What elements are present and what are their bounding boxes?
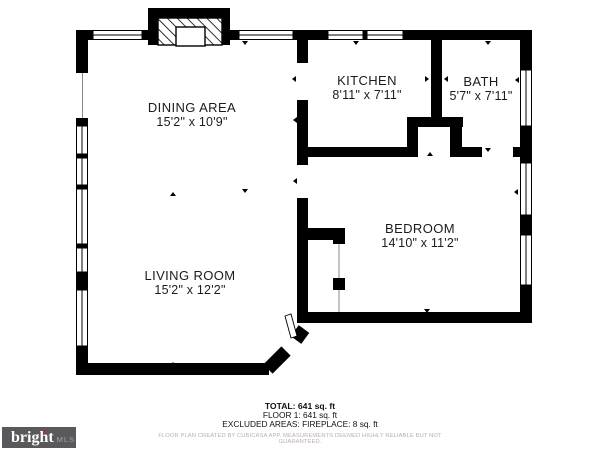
summary-disclaimer: FLOOR PLAN CREATED BY CUBICASA APP. MEAS… — [150, 433, 450, 445]
wall-right-1 — [520, 40, 532, 70]
marker-icon — [444, 76, 448, 82]
room-dims-kitchen: 8'11" x 7'11" — [332, 88, 401, 102]
wall-bottom-bedroom — [297, 312, 532, 323]
window-top-left — [93, 31, 142, 40]
wall-left-block2 — [76, 272, 88, 290]
wall-right-3 — [520, 215, 532, 235]
wall-diagonal-upper — [296, 329, 304, 340]
wall-left-top — [76, 30, 88, 73]
entry-door-leaf — [285, 314, 297, 338]
marker-icon — [425, 76, 429, 82]
floor-plan-drawing: DINING AREA 15'2" x 10'9" KITCHEN 8'11" … — [0, 0, 600, 450]
floor-plan-page: DINING AREA 15'2" x 10'9" KITCHEN 8'11" … — [0, 0, 600, 450]
marker-icon — [293, 178, 297, 184]
room-dims-dining: 15'2" x 10'9" — [156, 115, 227, 129]
fireplace-firebox — [176, 27, 205, 46]
logo-accent-dot-icon — [43, 430, 46, 433]
marker-icon — [292, 76, 296, 82]
marker-icon — [242, 189, 248, 193]
area-summary: TOTAL: 641 sq. ft FLOOR 1: 641 sq. ft EX… — [150, 402, 450, 445]
wall-closet-top — [297, 228, 335, 240]
window-bedroom-right-upper — [521, 163, 532, 215]
marker-icon — [515, 77, 519, 83]
window-bedroom-right-lower — [521, 235, 532, 285]
brightmls-logo: bright MLS — [2, 427, 76, 448]
summary-excluded: EXCLUDED AREAS: FIREPLACE: 8 sq. ft — [150, 420, 450, 429]
wall-bath-bottom-1 — [450, 147, 482, 157]
window-left-run-1 — [77, 126, 88, 272]
marker-icon — [427, 152, 433, 156]
room-label-bath: BATH — [463, 74, 498, 89]
marker-icon — [485, 41, 491, 45]
wall-bath-bottom-2 — [513, 147, 532, 157]
diagonal-walls — [268, 329, 304, 369]
room-dims-bath: 5'7" x 7'11" — [449, 89, 512, 103]
wall-right-2 — [520, 126, 532, 163]
room-dims-bedroom: 14'10" x 11'2" — [381, 236, 458, 250]
window-top-right-of-fireplace — [239, 31, 293, 40]
room-labels: DINING AREA 15'2" x 10'9" KITCHEN 8'11" … — [144, 73, 512, 297]
logo-suffix-text: MLS — [57, 435, 75, 444]
wall-closet-block — [333, 278, 345, 290]
wall-diagonal-lower — [268, 351, 286, 369]
room-label-kitchen: KITCHEN — [337, 73, 397, 88]
room-label-living: LIVING ROOM — [144, 268, 235, 283]
marker-icon — [353, 41, 359, 45]
room-label-dining: DINING AREA — [148, 100, 236, 115]
marker-icon — [242, 41, 248, 45]
window-bath-right — [521, 70, 532, 126]
room-label-bedroom: BEDROOM — [385, 221, 455, 236]
room-dims-living: 15'2" x 12'2" — [154, 283, 225, 297]
wall-kitchen-bottom — [297, 147, 418, 157]
wall-closet-stub — [333, 228, 345, 244]
marker-icon — [514, 189, 518, 195]
fireplace — [148, 8, 230, 46]
wall-top — [76, 30, 532, 40]
wall-inner-vertical-3 — [297, 198, 308, 312]
window-left-run-2 — [77, 290, 88, 346]
marker-icon — [293, 117, 297, 123]
marker-icon — [170, 192, 176, 196]
wall-kitchen-bath-divider — [431, 40, 442, 117]
wall-niche-left — [407, 117, 418, 157]
window-kitchen — [328, 31, 403, 40]
marker-icon — [485, 148, 491, 152]
wall-inner-vertical-1 — [297, 40, 308, 63]
logo-brand-text: bright — [11, 430, 54, 446]
